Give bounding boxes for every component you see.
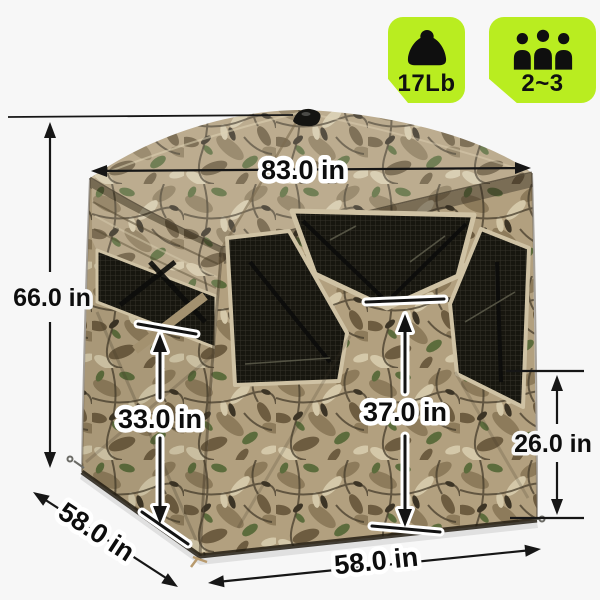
capacity-badge-label: 2~3	[521, 72, 563, 96]
weight-icon	[404, 17, 450, 72]
dim-left-window-height-label: 33.0 in	[118, 404, 202, 434]
weight-badge: 17Lb	[388, 17, 465, 103]
capacity-badge: 2~3	[489, 17, 596, 103]
dim-front-window-height-label: 37.0 in	[363, 397, 447, 427]
people-icon	[512, 17, 574, 72]
dim-side-window-height-label: 26.0 in	[514, 430, 592, 458]
dim-total-height-label: 66.0 in	[13, 284, 91, 312]
product-dimension-image: 66.0 in 83.0 in 33.0 in	[0, 0, 600, 600]
dim-total-height: 66.0 in	[13, 122, 91, 468]
weight-badge-label: 17Lb	[397, 72, 455, 96]
dim-top-width-label: 83.0 in	[261, 155, 345, 185]
